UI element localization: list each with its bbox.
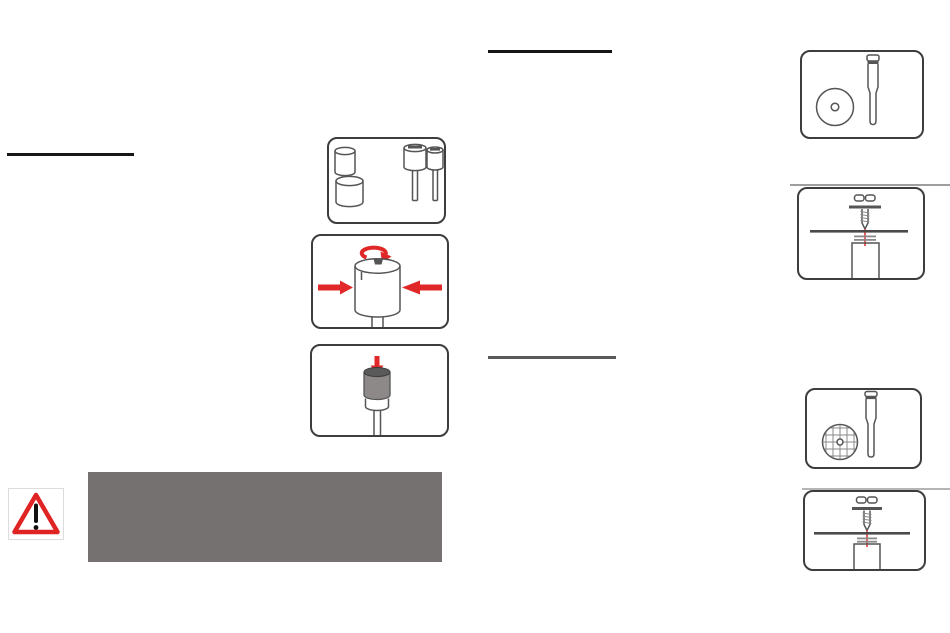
figure-squeeze-drum: [311, 234, 449, 329]
drum-accessories-illustration: [329, 139, 444, 222]
mandrel-body: [852, 243, 879, 278]
slide-sleeve-illustration: [312, 346, 447, 435]
warning-icon-box: [8, 488, 64, 540]
disc-edge: [814, 532, 910, 535]
disc-edge: [810, 230, 908, 233]
mandrel-body: [854, 544, 880, 569]
screw-disc-assembly-illustration: [799, 189, 923, 278]
warning-triangle-icon: [9, 489, 63, 539]
manual-page: [0, 0, 950, 633]
flange: [852, 507, 882, 510]
figure-mesh-disc-and-mandrel: [805, 388, 922, 469]
middle-top-heading-underline: [488, 50, 612, 53]
figure-slide-sleeve: [310, 344, 449, 437]
disc-mandrel-illustration: [802, 52, 922, 137]
middle-bottom-heading-underline: [488, 356, 616, 359]
flange: [849, 206, 881, 209]
wing-handle: [857, 497, 867, 503]
right-press-arrow-icon: [402, 281, 442, 295]
screw-mesh-disc-assembly-illustration: [805, 492, 924, 569]
figure-screw-mesh-disc-assembly: [803, 490, 926, 571]
left-press-arrow-icon: [318, 281, 353, 295]
figure-drum-accessories: [327, 137, 446, 224]
wing-handle: [855, 195, 865, 201]
mesh-disc-mandrel-illustration: [807, 390, 920, 467]
right-divider-line-top: [790, 184, 950, 186]
figure-screw-disc-assembly: [797, 187, 925, 280]
screw-head: [374, 259, 384, 265]
warning-text-block: [88, 472, 442, 562]
squeeze-drum-illustration: [313, 236, 447, 327]
left-heading-underline: [7, 153, 134, 156]
figure-disc-and-mandrel: [800, 50, 924, 139]
